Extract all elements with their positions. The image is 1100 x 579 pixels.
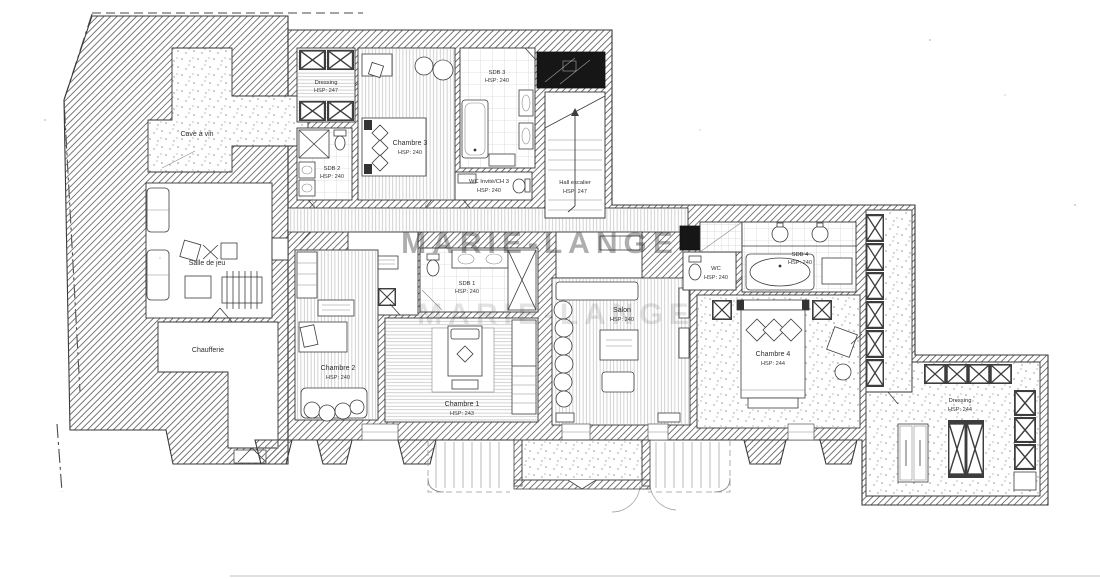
toilet-icon: [513, 179, 530, 193]
room-chambre-2: Chambre 2 HSP: 240: [295, 250, 378, 421]
floor-plan-page: Cave à vin Salle de jeu Chau: [0, 0, 1100, 579]
room-label-chaufferie: Chaufferie: [192, 347, 224, 354]
room-wc-invite: WC Invité/CH 3 HSP: 240: [455, 172, 532, 200]
furniture-label: [658, 413, 680, 422]
watermark-text: MARIE-LANGE: [401, 227, 679, 260]
room-chambre-3: Chambre 3 HSP: 240: [358, 48, 455, 200]
boundary-dashdot-bottom-left: [57, 424, 62, 492]
room-hsp-dressing-nord: HSP: 247: [314, 88, 338, 94]
room-hsp-hall-escalier: HSP: 247: [563, 189, 587, 195]
room-hsp-wc-invite: HSP: 240: [477, 188, 501, 194]
room-label-sdb-4: SDB 4: [792, 252, 810, 258]
room-hsp-sdb-4: HSP: 240: [788, 260, 812, 266]
room-label-chambre-2: Chambre 2: [321, 365, 356, 372]
room-hsp-chambre-4: HSP: 244: [761, 361, 785, 367]
room-chambre-1: Chambre 1 HSP: 243: [385, 318, 538, 422]
wardrobe-icon: [512, 320, 536, 414]
room-sdb-3: SDB 3 HSP: 240: [460, 48, 536, 168]
cabinet-icon: [822, 258, 852, 284]
shelving-icon: [297, 252, 317, 298]
furniture-label: [556, 413, 574, 422]
coffee-table-icon: [600, 330, 638, 360]
shower-icon: [299, 130, 329, 158]
landing-platform: [514, 440, 650, 489]
furniture-label: [318, 300, 354, 316]
room-hsp-chambre-3: HSP: 240: [398, 150, 422, 156]
room-hsp-chambre-1: HSP: 243: [450, 411, 474, 417]
cabinet-icon: [898, 424, 928, 482]
room-label-wc-invite: WC Invité/CH 3: [469, 179, 509, 185]
room-chambre-4: Chambre 4 HSP: 244: [697, 295, 860, 428]
room-label-sdb-2: SDB 2: [324, 166, 341, 172]
room-salle-de-jeu: Salle de jeu: [146, 183, 288, 318]
watermark-text-faint: MARIE-LANGE: [417, 298, 695, 331]
room-hsp-sdb-1: HSP: 240: [455, 289, 479, 295]
toilet-icon: [689, 256, 701, 280]
room-label-sdb-1: SDB 1: [459, 281, 476, 287]
floor-plan-canvas: Cave à vin Salle de jeu Chau: [0, 0, 1100, 579]
room-label-salle-de-jeu: Salle de jeu: [189, 260, 226, 267]
toilet-icon: [334, 130, 346, 150]
nightstand-icon: [713, 301, 731, 319]
bathtub-icon: [462, 100, 488, 158]
room-hsp-wc: HSP: 240: [704, 275, 728, 281]
room-hsp-sdb-2: HSP: 240: [320, 174, 344, 180]
room-label-hall-escalier: Hall escalier: [559, 180, 591, 186]
bed-icon: [362, 118, 426, 176]
bed-icon: [299, 322, 347, 352]
room-label-sdb-3: SDB 3: [489, 70, 506, 76]
room-label-chambre-3: Chambre 3: [393, 140, 428, 147]
room-sdb-2: SDB 2 HSP: 240: [297, 128, 352, 200]
sofa-icon: [301, 388, 367, 421]
room-hsp-dressing-sud: HSP: 244: [948, 407, 972, 413]
pouf-icon: [602, 372, 634, 392]
technical-shaft-2: [680, 226, 700, 250]
room-label-dressing-nord: Dressing: [315, 80, 338, 86]
cabinet-icon: [489, 154, 515, 166]
room-label-dressing-sud: Dressing: [949, 398, 972, 404]
room-label-wc: WC: [711, 266, 721, 272]
room-label-chambre-4: Chambre 4: [756, 351, 791, 358]
room-hall-escalier: Hall escalier HSP: 247: [545, 92, 605, 218]
nightstand-icon: [813, 301, 831, 319]
dryer-icon: [379, 289, 396, 306]
desk-icon: [362, 54, 392, 78]
room-label-chambre-1: Chambre 1: [445, 401, 480, 408]
room-hsp-sdb-3: HSP: 240: [485, 78, 509, 84]
foosball-table-icon: [222, 271, 262, 309]
technical-shaft: [537, 52, 605, 88]
room-label-cave-a-vin: Cave à vin: [180, 131, 213, 138]
room-hsp-chambre-2: HSP: 240: [326, 375, 350, 381]
